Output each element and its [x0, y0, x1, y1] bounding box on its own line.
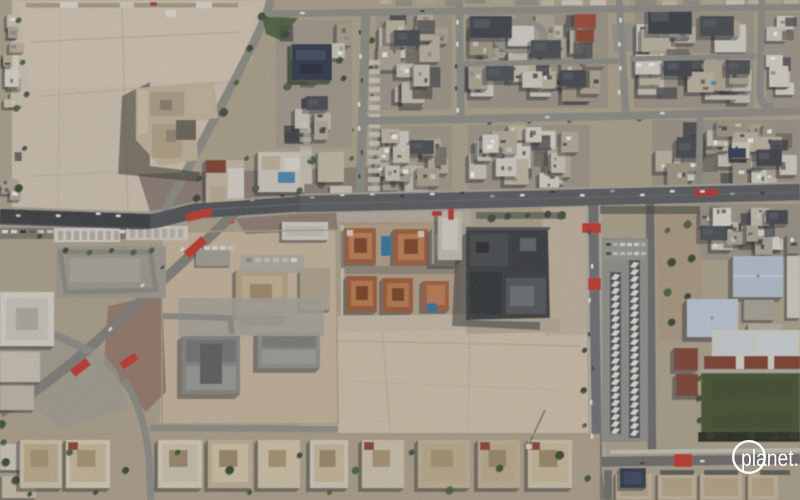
- svg-text:planet.: planet.: [741, 445, 799, 471]
